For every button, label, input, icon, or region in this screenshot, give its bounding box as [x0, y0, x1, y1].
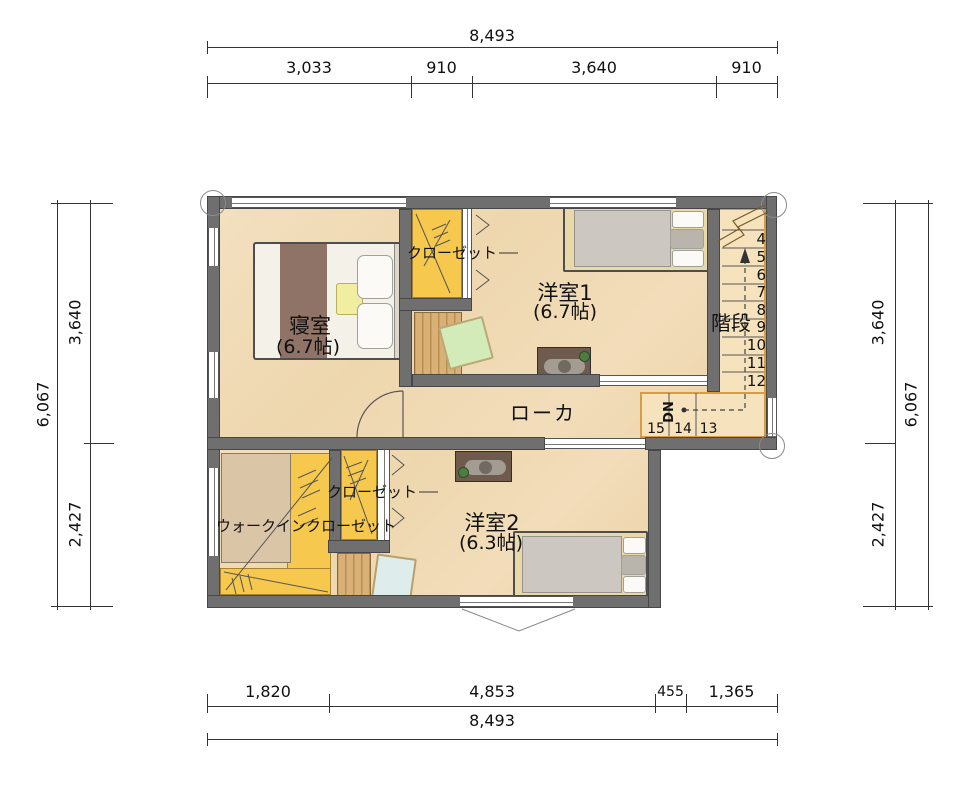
- plant: [579, 351, 590, 362]
- dim-top-seg-3: 3,640: [472, 59, 716, 77]
- wood-floor-strip-2: [337, 553, 371, 596]
- closet-lower-label: クローゼット: [327, 484, 417, 500]
- dim-left-total: 6,067: [34, 365, 53, 445]
- pillow: [357, 255, 393, 299]
- wall-bottom: [207, 595, 661, 608]
- stair-tread-number: 14: [670, 421, 696, 437]
- wall-corridor-north: [412, 374, 600, 387]
- stair-tread-number: 7: [744, 284, 766, 301]
- dim-bottom-seg-1: 1,820: [207, 683, 329, 701]
- wall-closet-top-south: [399, 298, 472, 311]
- column-grid-circle: [761, 192, 787, 218]
- dim-top-seg-1: 3,033: [207, 59, 411, 77]
- window-western2-south: [460, 596, 573, 607]
- stair-tread-number: 12: [744, 373, 766, 390]
- stair-tread-number: 13: [697, 421, 720, 437]
- window-western1-north: [550, 197, 676, 208]
- pillow: [357, 303, 393, 349]
- column-grid-circle: [200, 190, 226, 216]
- wic-hanger-band-bottom: [220, 568, 331, 595]
- wic-chest: [221, 453, 291, 563]
- sliding-door-western1: [600, 375, 707, 386]
- window-wic-west: [208, 468, 219, 556]
- laptop: [465, 460, 506, 475]
- dim-left-seg-2: 2,427: [66, 485, 85, 565]
- corridor-label: ローカ: [510, 402, 576, 424]
- stair-tread-number: 8: [744, 302, 766, 319]
- pillow: [672, 250, 704, 267]
- stairs-down-label: DN: [662, 401, 678, 423]
- walk-in-closet-label: ウォークインクローゼット: [216, 518, 396, 534]
- western2-size: (6.3帖): [459, 533, 523, 553]
- bedroom-size: (6.7帖): [276, 337, 340, 357]
- dim-bottom-seg-line: [207, 706, 777, 707]
- wall-middle-west: [207, 437, 545, 450]
- window-bedroom-west-2: [208, 352, 219, 398]
- stair-tread-number: 15: [643, 421, 669, 437]
- stair-tread-number: 10: [744, 337, 766, 354]
- window-stair-landing-east: [767, 398, 777, 436]
- floor-plan-page: 8,493 3,033 910 3,640 910 1,820 4,853 45…: [0, 0, 960, 793]
- dim-right-seg-1: 3,640: [869, 283, 888, 363]
- closet-top-label: クローゼット: [407, 245, 497, 261]
- bedroom-label: 寝室: [289, 315, 331, 337]
- wall-closet-lower-south: [328, 540, 390, 553]
- stair-tread-number: 11: [744, 355, 766, 372]
- pillow: [623, 576, 646, 593]
- dim-right-total-line: [928, 200, 929, 610]
- desk-western2: [455, 451, 512, 482]
- dim-top-total: 8,493: [207, 27, 777, 45]
- dim-bottom-seg-4: 1,365: [686, 683, 777, 701]
- dim-right-total: 6,067: [902, 365, 921, 445]
- dim-bottom-total: 8,493: [207, 712, 777, 730]
- column-grid-circle: [759, 433, 785, 459]
- dim-right-seg-line: [895, 200, 896, 610]
- pillow: [621, 555, 646, 575]
- dim-right-seg-2: 2,427: [869, 485, 888, 565]
- stair-tread-number: 5: [744, 249, 766, 266]
- dim-bottom-seg-3: 455: [655, 683, 686, 701]
- stair-tread-number: 6: [744, 267, 766, 284]
- dim-top-seg-line: [207, 83, 777, 84]
- western2-label: 洋室2: [464, 512, 519, 534]
- plant: [458, 467, 469, 478]
- wall-right-lower: [648, 450, 661, 608]
- pillow: [623, 537, 646, 554]
- dim-bottom-total-line: [207, 739, 777, 740]
- pillow: [672, 211, 704, 228]
- stair-tread-number: 4: [744, 231, 766, 248]
- wall-wic-east: [329, 450, 341, 553]
- window-bedroom-west-1: [208, 228, 219, 266]
- stair-tread-number: 9: [744, 319, 766, 336]
- dim-top-total-line: [207, 47, 777, 48]
- single-bed-western1: [563, 205, 713, 272]
- dim-left-total-line: [57, 200, 58, 610]
- pillow: [670, 229, 704, 249]
- dim-left-seg-line: [90, 200, 91, 610]
- dim-bottom-seg-2: 4,853: [329, 683, 655, 701]
- dim-left-seg-1: 3,640: [66, 283, 85, 363]
- bed-blanket: [574, 210, 671, 267]
- dim-top-seg-4: 910: [716, 59, 777, 77]
- wall-middle-east: [645, 437, 777, 450]
- single-bed-western2: [513, 531, 648, 598]
- laptop: [544, 359, 585, 374]
- window-bedroom-north: [232, 197, 406, 208]
- western1-size: (6.7帖): [533, 302, 597, 322]
- wall-stairs-west: [707, 209, 720, 392]
- bed-blanket: [522, 536, 622, 593]
- sliding-door-western2: [545, 438, 645, 449]
- dim-top-seg-2: 910: [411, 59, 472, 77]
